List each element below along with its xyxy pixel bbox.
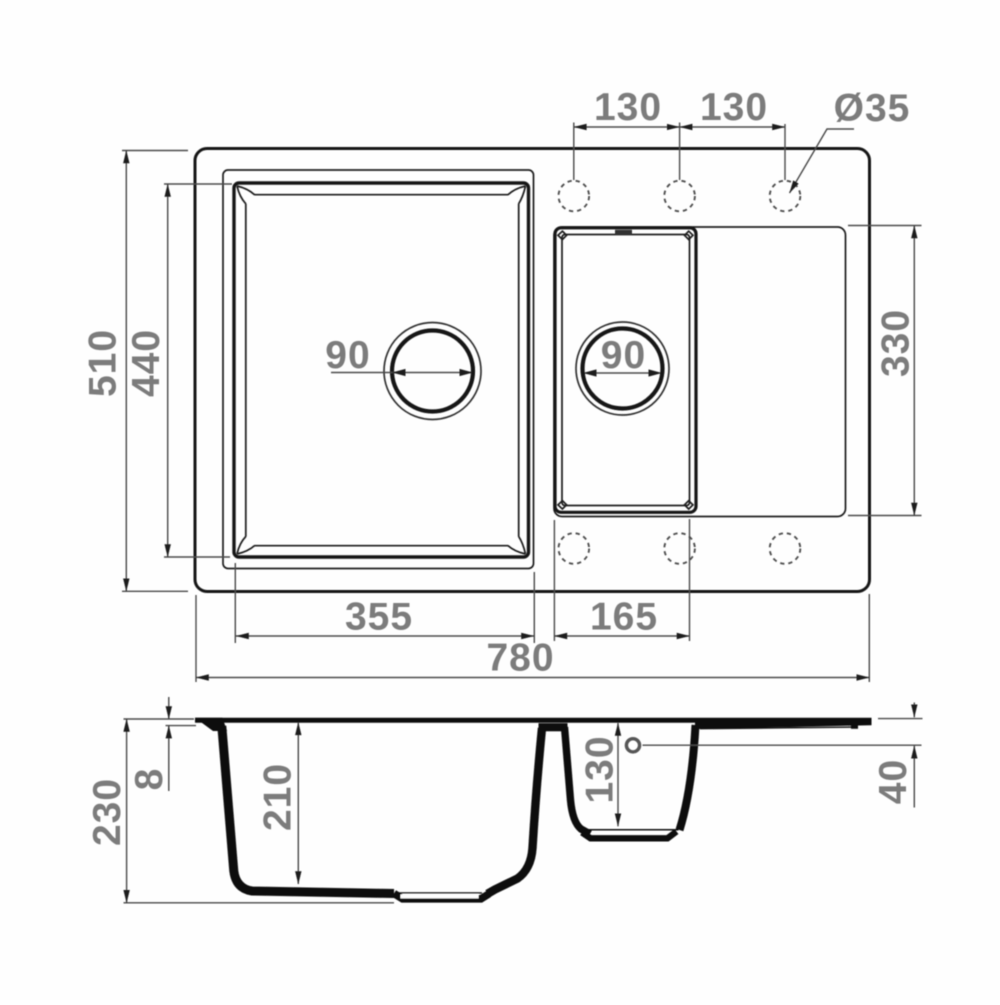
svg-text:Ø35: Ø35 xyxy=(834,87,911,130)
svg-text:230: 230 xyxy=(86,778,129,846)
svg-text:90: 90 xyxy=(601,334,646,377)
svg-text:440: 440 xyxy=(125,329,168,397)
svg-text:130: 130 xyxy=(700,86,768,129)
svg-text:130: 130 xyxy=(594,86,662,129)
svg-text:330: 330 xyxy=(875,309,918,377)
svg-text:8: 8 xyxy=(128,768,171,791)
svg-text:780: 780 xyxy=(486,637,554,680)
svg-text:165: 165 xyxy=(590,596,658,639)
svg-text:210: 210 xyxy=(257,763,300,831)
svg-text:130: 130 xyxy=(579,735,622,803)
svg-text:40: 40 xyxy=(872,759,915,804)
svg-text:90: 90 xyxy=(325,334,370,377)
svg-text:510: 510 xyxy=(82,329,125,397)
svg-text:355: 355 xyxy=(345,596,413,639)
